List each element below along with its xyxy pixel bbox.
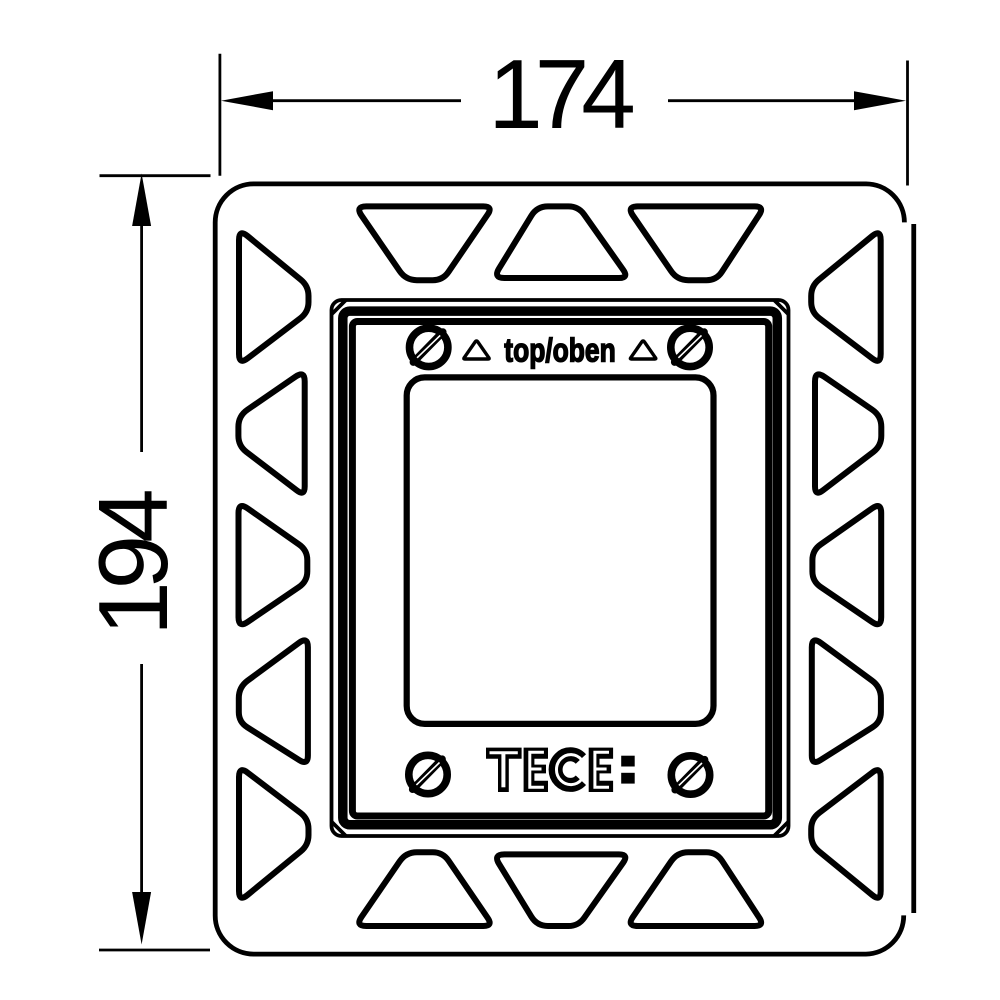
svg-text:194: 194 bbox=[78, 491, 188, 636]
svg-text:174: 174 bbox=[488, 39, 633, 149]
svg-text:top/oben: top/oben bbox=[504, 333, 615, 369]
